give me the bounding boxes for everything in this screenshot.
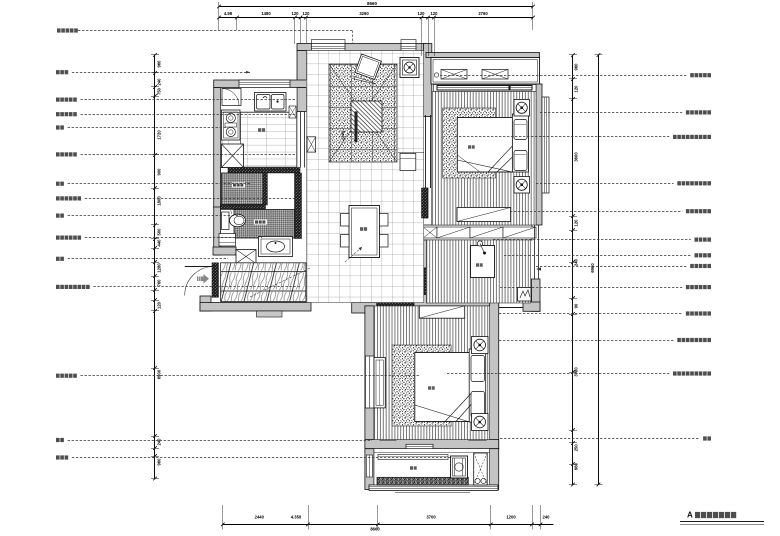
svg-text:760: 760 — [157, 279, 162, 287]
svg-text:1200: 1200 — [506, 515, 516, 520]
svg-text:750: 750 — [157, 87, 162, 95]
svg-text:1280: 1280 — [157, 263, 162, 273]
svg-text:4.350: 4.350 — [291, 515, 302, 520]
svg-text:6900: 6900 — [157, 369, 162, 379]
svg-text:240: 240 — [157, 78, 162, 86]
svg-text:2760: 2760 — [478, 11, 488, 16]
svg-text:120: 120 — [157, 301, 162, 309]
svg-text:90: 90 — [574, 303, 579, 308]
svg-text:4.98: 4.98 — [224, 11, 233, 16]
svg-text:960: 960 — [157, 458, 162, 466]
svg-text:440: 440 — [157, 239, 162, 247]
svg-text:120: 120 — [431, 11, 439, 16]
svg-text:900: 900 — [157, 168, 162, 176]
svg-text:8660: 8660 — [367, 1, 378, 6]
svg-text:120: 120 — [574, 219, 579, 227]
svg-text:1480: 1480 — [261, 11, 271, 16]
svg-text:960: 960 — [157, 60, 162, 68]
svg-text:1720: 1720 — [157, 130, 162, 140]
svg-text:3780: 3780 — [574, 367, 579, 377]
svg-text:6960: 6960 — [590, 263, 595, 273]
svg-text:3260: 3260 — [359, 11, 369, 16]
svg-text:1800: 1800 — [157, 196, 162, 206]
svg-text:120: 120 — [303, 11, 311, 16]
svg-text:240: 240 — [543, 515, 551, 520]
svg-text:120: 120 — [292, 11, 300, 16]
svg-text:240: 240 — [157, 438, 162, 446]
svg-text:500: 500 — [157, 228, 162, 236]
svg-text:3600: 3600 — [574, 152, 579, 162]
svg-text:120: 120 — [574, 85, 579, 93]
svg-text:A: A — [687, 511, 693, 520]
svg-text:960: 960 — [574, 63, 579, 71]
svg-text:3700: 3700 — [426, 515, 436, 520]
svg-text:960: 960 — [574, 462, 579, 470]
svg-text:2440: 2440 — [255, 515, 265, 520]
svg-text:(340): (340) — [341, 130, 345, 140]
svg-text:120: 120 — [418, 11, 426, 16]
svg-text:240: 240 — [574, 258, 579, 266]
svg-text:8660: 8660 — [370, 527, 380, 532]
svg-text:250: 250 — [574, 444, 579, 452]
